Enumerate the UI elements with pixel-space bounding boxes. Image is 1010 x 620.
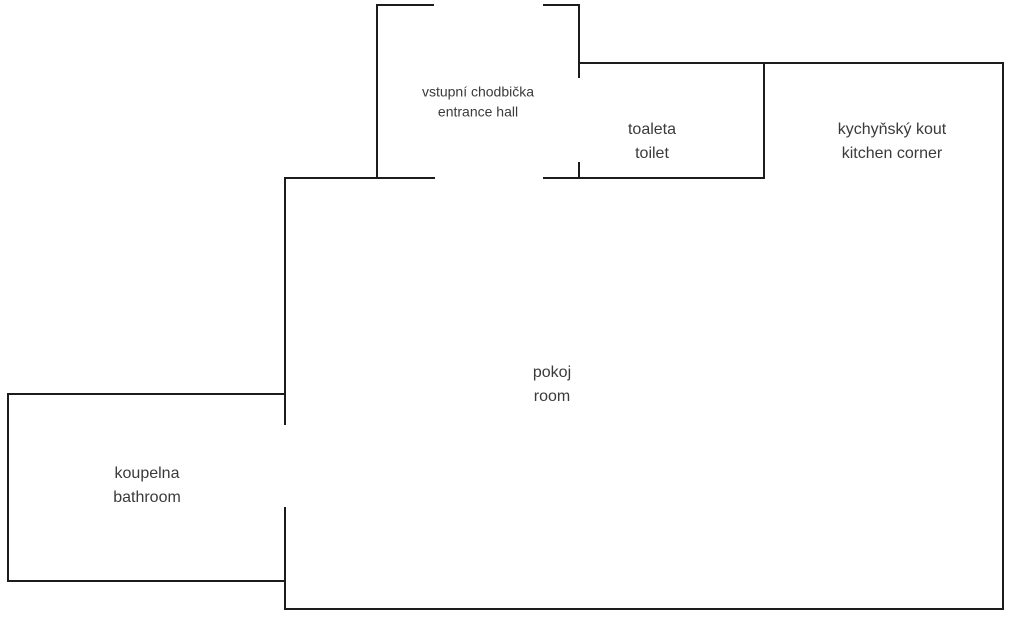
room-label-room: pokojroom [533,361,571,409]
wall-bathroom-top-wall [7,393,286,395]
room-label-entrance-hall: vstupní chodbičkaentrance hall [422,82,534,123]
room-name-english: toilet [628,142,676,166]
wall-right-outer-wall [1002,62,1004,610]
wall-room-top-wall-left [284,177,435,179]
room-name-czech: toaleta [628,118,676,142]
wall-room-left-wall-lower [284,507,286,610]
wall-hall-toilet-wall-upper [578,4,580,78]
wall-room-left-wall-upper [284,177,286,425]
wall-hall-top-wall-left [376,4,434,6]
floor-plan: vstupní chodbičkaentrance halltoaletatoi… [0,0,1010,620]
wall-hall-top-wall-right [543,4,580,6]
wall-toilet-right-wall [763,62,765,179]
wall-room-bottom-wall [284,608,1004,610]
room-name-english: entrance hall [422,102,534,122]
room-name-czech: pokoj [533,361,571,385]
wall-bathroom-left-wall [7,393,9,582]
room-label-bathroom: koupelnabathroom [113,462,181,510]
wall-toilet-kitchen-top-wall [578,62,1004,64]
wall-hall-left-wall [376,4,378,179]
wall-toilet-bottom-wall [543,177,765,179]
room-name-czech: kychyňský kout [838,118,946,142]
room-name-english: room [533,385,571,409]
room-label-toilet: toaletatoilet [628,118,676,166]
wall-bathroom-bottom-wall [7,580,286,582]
room-name-english: kitchen corner [838,142,946,166]
wall-hall-toilet-wall-lower [578,162,580,179]
room-name-czech: vstupní chodbička [422,82,534,102]
room-name-czech: koupelna [113,462,181,486]
room-name-english: bathroom [113,486,181,510]
room-label-kitchen-corner: kychyňský koutkitchen corner [838,118,946,166]
